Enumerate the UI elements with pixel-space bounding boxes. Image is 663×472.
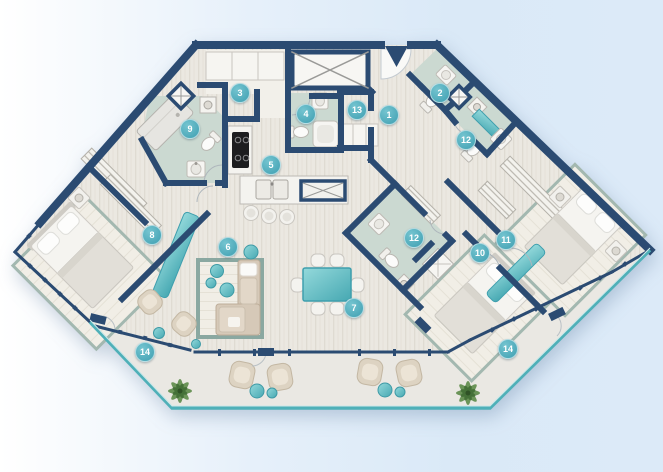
marker-badge-1[interactable]: 1 [379,105,399,125]
marker-badge-4[interactable]: 4 [296,104,316,124]
marker-badge-10[interactable]: 10 [470,243,490,263]
badge-number: 10 [475,249,485,258]
marker-badge-3[interactable]: 3 [230,83,250,103]
marker-badge-11[interactable]: 11 [496,230,516,250]
badge-layer: 1 2 3 4 5 6 7 8 9 10 11 12 12 13 14 14 [0,0,663,472]
marker-badge-5[interactable]: 5 [261,155,281,175]
badge-number: 6 [225,243,230,252]
marker-badge-7[interactable]: 7 [344,298,364,318]
badge-number: 4 [303,110,308,119]
marker-badge-14a[interactable]: 14 [135,342,155,362]
marker-badge-12a[interactable]: 12 [456,130,476,150]
badge-number: 3 [237,89,242,98]
badge-number: 11 [501,236,511,245]
marker-badge-8[interactable]: 8 [142,225,162,245]
badge-number: 9 [187,125,192,134]
badge-number: 1 [386,111,391,120]
marker-badge-14b[interactable]: 14 [498,339,518,359]
marker-badge-9[interactable]: 9 [180,119,200,139]
marker-badge-13[interactable]: 13 [347,100,367,120]
badge-number: 12 [409,234,419,243]
badge-number: 13 [352,106,362,115]
floor-plan-canvas: 1 2 3 4 5 6 7 8 9 10 11 12 12 13 14 14 [0,0,663,472]
badge-number: 8 [149,231,154,240]
marker-badge-12b[interactable]: 12 [404,228,424,248]
badge-number: 5 [268,161,273,170]
badge-number: 7 [351,304,356,313]
badge-number: 12 [461,136,471,145]
badge-number: 14 [140,348,150,357]
marker-badge-6[interactable]: 6 [218,237,238,257]
marker-badge-2[interactable]: 2 [430,83,450,103]
badge-number: 2 [437,89,442,98]
badge-number: 14 [503,345,513,354]
